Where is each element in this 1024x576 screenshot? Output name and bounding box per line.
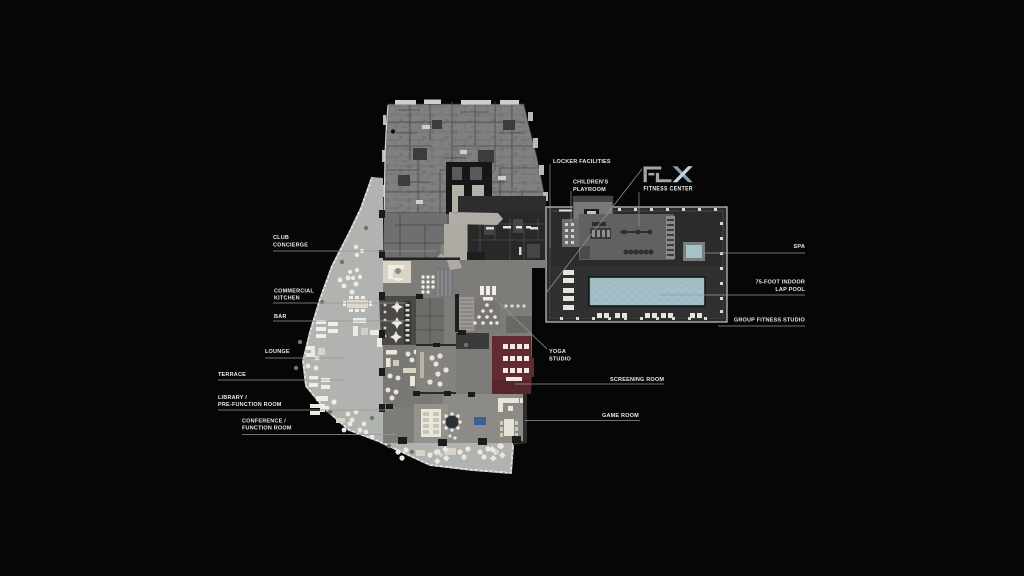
svg-text:FITNESS CENTER: FITNESS CENTER <box>644 187 694 193</box>
svg-text:LAP POOL: LAP POOL <box>775 287 805 293</box>
svg-text:YOGA: YOGA <box>549 349 566 355</box>
svg-text:LOCKER FACILITIES: LOCKER FACILITIES <box>553 159 611 165</box>
svg-text:KITCHEN: KITCHEN <box>274 295 300 301</box>
svg-text:CHILDREN'S: CHILDREN'S <box>573 180 609 186</box>
svg-text:CLUB: CLUB <box>273 235 289 241</box>
svg-text:PRE-FUNCTION ROOM: PRE-FUNCTION ROOM <box>218 402 282 408</box>
svg-text:TERRACE: TERRACE <box>218 372 246 378</box>
svg-text:STUDIO: STUDIO <box>549 357 572 363</box>
svg-text:GROUP FITNESS STUDIO: GROUP FITNESS STUDIO <box>734 317 806 323</box>
svg-text:COMMERCIAL: COMMERCIAL <box>274 288 314 294</box>
svg-text:SPA: SPA <box>793 244 805 250</box>
svg-text:75-FOOT INDOOR: 75-FOOT INDOOR <box>755 280 805 286</box>
svg-text:SCREENING ROOM: SCREENING ROOM <box>610 377 664 383</box>
svg-text:CONCIERGE: CONCIERGE <box>273 243 308 249</box>
svg-text:GAME ROOM: GAME ROOM <box>602 413 639 419</box>
svg-text:FUNCTION ROOM: FUNCTION ROOM <box>242 425 292 431</box>
svg-text:LOUNGE: LOUNGE <box>265 349 290 355</box>
svg-text:PLAYROOM: PLAYROOM <box>573 187 606 193</box>
svg-text:LIBRARY /: LIBRARY / <box>218 395 247 401</box>
svg-text:BAR: BAR <box>274 314 287 320</box>
svg-text:CONFERENCE /: CONFERENCE / <box>242 418 286 424</box>
